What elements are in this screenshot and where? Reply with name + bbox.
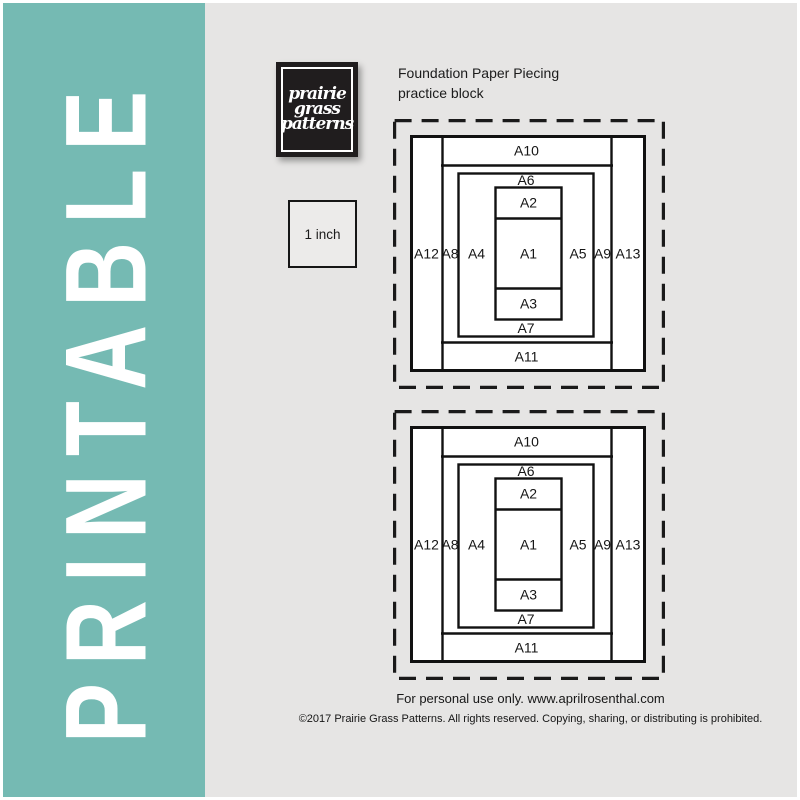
footer: For personal use only. www.aprilrosentha… <box>258 691 800 727</box>
piece-label-a11: A11 <box>515 639 539 655</box>
piece-label-a10: A10 <box>514 142 539 158</box>
printable-pattern-page: PRINTABLE prairie grass patterns Foundat… <box>0 0 800 800</box>
piece-label-a3: A3 <box>520 295 537 311</box>
piece-label-a11: A11 <box>515 348 539 364</box>
one-inch-scale-box: 1 inch <box>288 200 357 268</box>
piece-label-a9: A9 <box>594 536 611 552</box>
piece-label-a7: A7 <box>517 611 534 627</box>
personal-use-note: For personal use only. www.aprilrosentha… <box>258 691 800 707</box>
piece-label-a8: A8 <box>441 245 458 261</box>
copyright-note: ©2017 Prairie Grass Patterns. All rights… <box>258 712 800 727</box>
sidebar-band: PRINTABLE <box>3 3 205 797</box>
piece-label-a7: A7 <box>517 320 534 336</box>
piece-label-a12: A12 <box>414 245 439 261</box>
page-title-line2: practice block <box>398 84 559 104</box>
piece-label-a8: A8 <box>441 536 458 552</box>
one-inch-label: 1 inch <box>304 227 340 242</box>
printable-vertical-label: PRINTABLE <box>30 58 184 758</box>
piece-label-a6: A6 <box>517 172 534 188</box>
piece-label-a4: A4 <box>468 245 485 261</box>
page-title: Foundation Paper Piecing practice block <box>398 64 559 103</box>
page-title-line1: Foundation Paper Piecing <box>398 64 559 84</box>
block-diagram: A10 A6 A2 A1 A3 A7 A11 A12 A8 A4 A5 A9 A… <box>393 410 665 680</box>
piece-label-a10: A10 <box>514 433 539 449</box>
piece-label-a2: A2 <box>520 194 537 210</box>
piece-label-a2: A2 <box>520 485 537 501</box>
practice-block-2: A10 A6 A2 A1 A3 A7 A11 A12 A8 A4 A5 A9 A… <box>393 410 665 680</box>
prairie-grass-patterns-logo: prairie grass patterns <box>276 62 358 157</box>
piece-label-a13: A13 <box>616 245 641 261</box>
piece-label-a13: A13 <box>616 536 641 552</box>
practice-block-1: A10 A6 A2 A1 A3 A7 A11 A12 A8 A4 A5 A9 A… <box>393 119 665 389</box>
piece-label-a1: A1 <box>520 245 537 261</box>
piece-label-a6: A6 <box>517 463 534 479</box>
logo-word-patterns: patterns <box>281 117 353 132</box>
piece-label-a12: A12 <box>414 536 439 552</box>
piece-label-a4: A4 <box>468 536 485 552</box>
piece-label-a5: A5 <box>569 245 586 261</box>
piece-label-a9: A9 <box>594 245 611 261</box>
piece-label-a3: A3 <box>520 586 537 602</box>
block-diagram: A10 A6 A2 A1 A3 A7 A11 A12 A8 A4 A5 A9 A… <box>393 119 665 389</box>
piece-label-a1: A1 <box>520 536 537 552</box>
piece-label-a5: A5 <box>569 536 586 552</box>
logo-inner-border: prairie grass patterns <box>281 67 353 152</box>
